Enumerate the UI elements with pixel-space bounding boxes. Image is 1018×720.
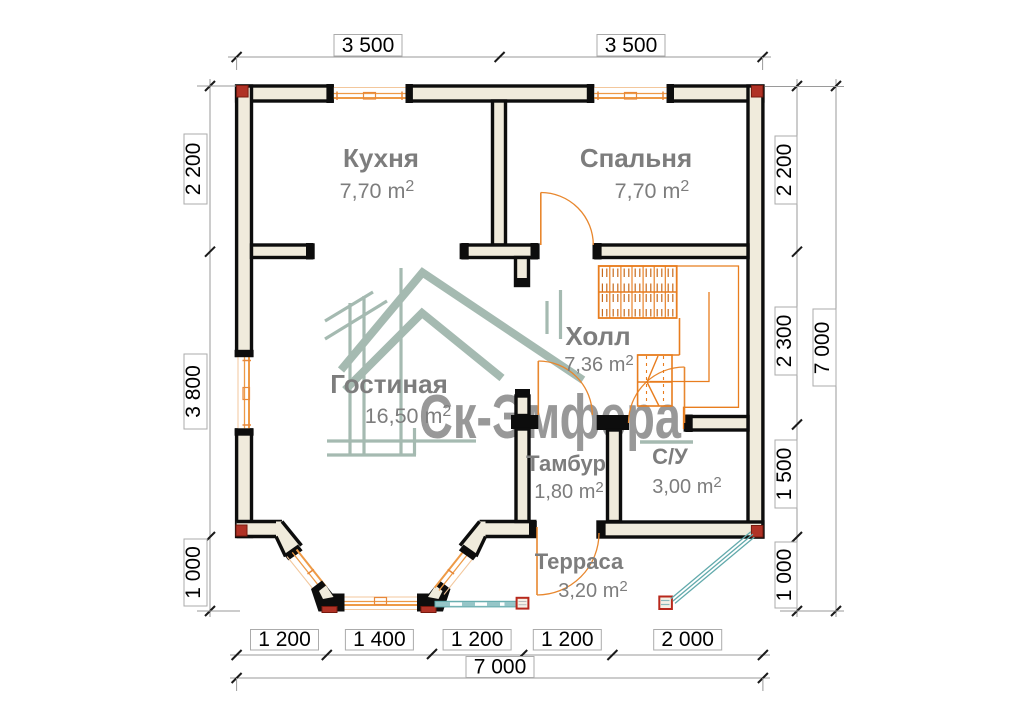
svg-text:1 200: 1 200: [258, 628, 311, 651]
svg-text:3 500: 3 500: [342, 34, 395, 57]
svg-text:1 400: 1 400: [353, 628, 406, 651]
svg-text:7,70 m2: 7,70 m2: [615, 178, 690, 203]
svg-text:Спальня: Спальня: [580, 143, 692, 173]
svg-text:7,70 m2: 7,70 m2: [340, 178, 415, 203]
svg-text:3,20 m2: 3,20 m2: [558, 578, 628, 602]
svg-text:7,36 m2: 7,36 m2: [564, 352, 634, 376]
svg-text:7 000: 7 000: [474, 656, 527, 679]
svg-text:Тамбур: Тамбур: [526, 451, 606, 476]
svg-text:1 000: 1 000: [182, 546, 205, 599]
svg-text:С/У: С/У: [652, 444, 688, 469]
svg-text:1,80 m2: 1,80 m2: [534, 479, 604, 503]
svg-text:2 200: 2 200: [182, 143, 205, 196]
svg-text:1 000: 1 000: [773, 549, 796, 602]
svg-text:2 200: 2 200: [773, 144, 796, 197]
svg-text:1 200: 1 200: [451, 628, 504, 651]
svg-text:Гостиная: Гостиная: [330, 369, 448, 399]
svg-text:16,50 m2: 16,50 m2: [365, 403, 452, 428]
svg-text:3 800: 3 800: [182, 365, 205, 418]
svg-text:2 000: 2 000: [661, 628, 714, 651]
svg-text:1 500: 1 500: [773, 448, 796, 501]
svg-text:3,00 m2: 3,00 m2: [652, 474, 722, 498]
svg-text:Терраса: Терраса: [535, 549, 624, 574]
svg-text:Холл: Холл: [565, 321, 630, 351]
svg-text:Кухня: Кухня: [343, 143, 419, 173]
svg-text:3 500: 3 500: [605, 34, 658, 57]
svg-text:7 000: 7 000: [811, 322, 834, 375]
svg-text:2 300: 2 300: [773, 315, 796, 368]
svg-text:1 200: 1 200: [541, 628, 594, 651]
